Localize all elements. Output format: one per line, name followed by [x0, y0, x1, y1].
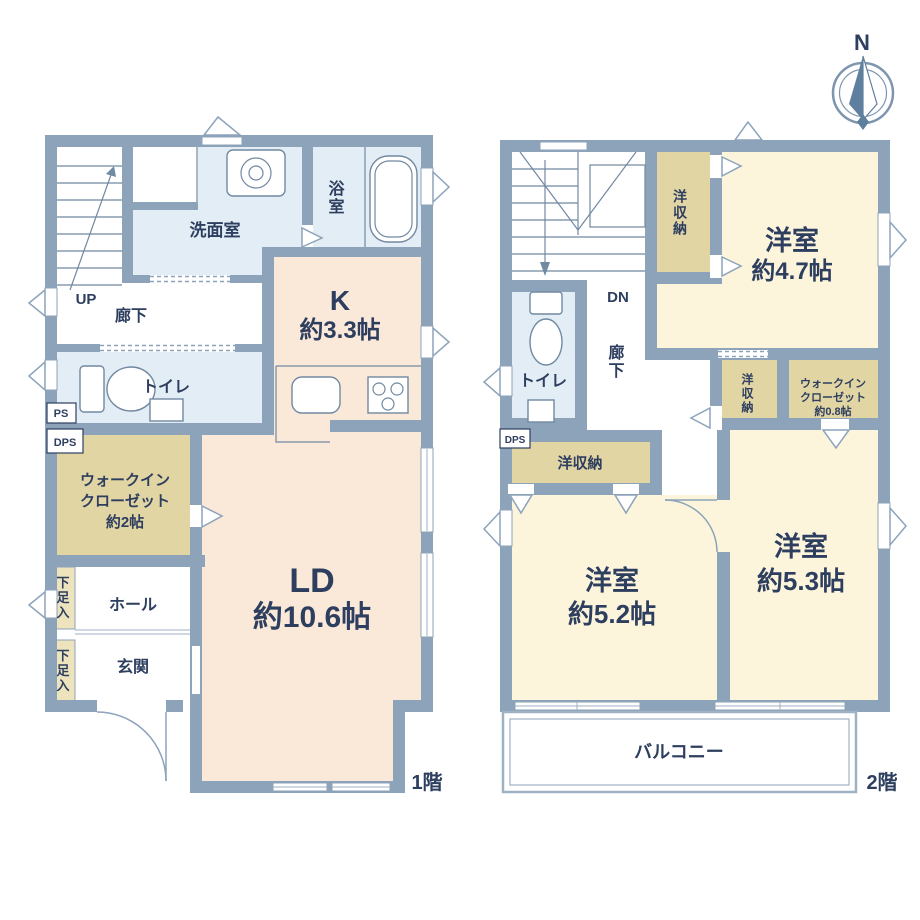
- floorplan-svg: 洗面室 浴室 K 約3.3帖 UP 廊下 トイレ PS DPS ウォークイン ク…: [0, 0, 920, 920]
- bedroom-47-size-label: 約4.7帖: [751, 257, 832, 285]
- stair-landing-area: [128, 147, 198, 202]
- dps-label: DPS: [54, 437, 77, 449]
- wic-label-line1: ウォークイン: [80, 472, 170, 489]
- closet-mid-label: 洋収納: [740, 372, 754, 415]
- window-icon: [890, 508, 906, 545]
- stairs-up-label: UP: [76, 291, 97, 308]
- sink-icon: [292, 377, 340, 413]
- window-icon: [735, 122, 762, 140]
- wic08-label-line1: ウォークイン: [800, 377, 866, 390]
- stairs-arrow-icon: [540, 262, 550, 276]
- toilet-cabinet-icon: [150, 399, 183, 421]
- entrance-door-arc: [97, 712, 166, 781]
- bedroom-53-area: [730, 430, 878, 700]
- window-icon: [204, 117, 240, 135]
- floor1-plan: 洗面室 浴室 K 約3.3帖 UP 廊下 トイレ PS DPS ウォークイン ク…: [29, 117, 449, 794]
- toilet-label: トイレ: [142, 379, 190, 396]
- hallway2-label: 廊下: [606, 343, 625, 380]
- bedroom-52-name-label: 洋室: [585, 565, 639, 596]
- ps-label: PS: [54, 408, 69, 420]
- wic08-label-line3: 約0.8帖: [814, 404, 851, 418]
- window-icon: [29, 362, 45, 390]
- washroom-label: 洗面室: [190, 220, 241, 240]
- window-icon: [29, 290, 45, 316]
- bedroom-53-name-label: 洋室: [774, 531, 828, 562]
- compass-icon: N: [833, 30, 893, 130]
- floor1-label: 1階: [411, 771, 442, 794]
- floor2-plan: DN 廊下 トイレ 洋収納 洋室 約4.7帖 洋収納 ウォークイン クローゼット…: [484, 122, 906, 794]
- floor2-label: 2階: [866, 771, 897, 794]
- window-icon: [484, 512, 500, 546]
- window-icon: [433, 172, 449, 202]
- wic-label-line2: クローゼット: [80, 492, 170, 510]
- closet-top-label: 洋収納: [672, 188, 688, 237]
- window-icon: [29, 592, 45, 618]
- shoe-box-lower-label: 下足入: [55, 649, 70, 694]
- bedroom-53-size-label: 約5.3帖: [757, 566, 845, 596]
- stove-icon: [368, 377, 408, 413]
- stairs-down-label: DN: [607, 289, 629, 306]
- bedroom-47-name-label: 洋室: [765, 225, 819, 256]
- living-dining-size-label: 約10.6帖: [253, 601, 371, 634]
- bathroom-label: 浴室: [326, 179, 345, 216]
- window-icon: [484, 368, 500, 396]
- floorplan-canvas: 洗面室 浴室 K 約3.3帖 UP 廊下 トイレ PS DPS ウォークイン ク…: [0, 0, 920, 920]
- kitchen-size-label: 約3.3帖: [299, 316, 380, 344]
- closet-door-icon: [691, 408, 710, 428]
- hall-label: ホール: [109, 596, 157, 614]
- hallway-label: 廊下: [115, 306, 147, 325]
- wic-label-line3: 約2帖: [106, 513, 144, 531]
- window-icon: [433, 328, 449, 356]
- entrance-label: 玄関: [117, 657, 149, 676]
- shoe-box-upper-label: 下足入: [55, 576, 70, 621]
- stairs-down-icon: [512, 152, 645, 276]
- compass-north-label: N: [854, 30, 870, 55]
- closet-low-label: 洋収納: [557, 454, 602, 472]
- bathtub-icon: [370, 156, 417, 242]
- stairs-arrow-icon: [106, 166, 116, 177]
- window-icon: [890, 222, 906, 258]
- wic08-label-line2: クローゼット: [800, 390, 866, 404]
- toilet2-label: トイレ: [519, 373, 567, 390]
- dps2-label: DPS: [505, 435, 526, 446]
- bedroom-52-size-label: 約5.2帖: [568, 599, 656, 629]
- living-dining-name-label: LD: [289, 562, 334, 600]
- kitchen-name-label: K: [330, 285, 350, 316]
- bedroom-52-area: [512, 495, 717, 700]
- balcony-label: バルコニー: [634, 742, 724, 762]
- washing-machine-icon: [227, 150, 285, 196]
- stairs-up-icon: [57, 166, 122, 290]
